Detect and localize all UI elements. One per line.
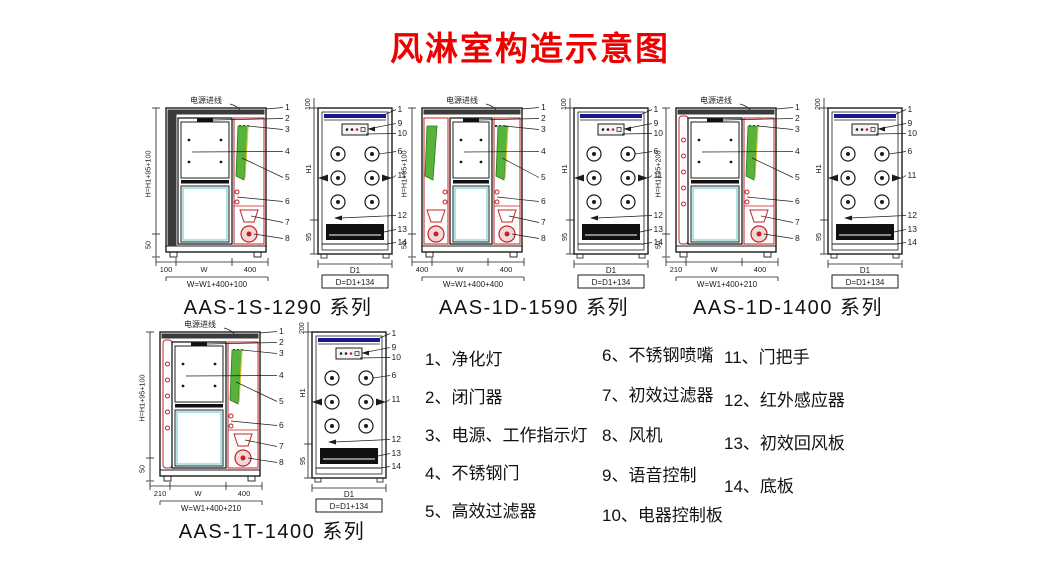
power-inlet-label: 电源进线 xyxy=(184,319,216,329)
depth-formula: D=D1+134 xyxy=(336,278,375,287)
callout-7: 7 xyxy=(285,217,290,227)
callout-8: 8 xyxy=(285,233,290,243)
base-height-dim: 50 xyxy=(400,241,409,249)
front-view-aas-1d-1400: 200H195D1D=D1+1341910611121314 xyxy=(814,94,920,290)
callout-2: 2 xyxy=(285,113,290,123)
h1-dim: H1 xyxy=(298,388,307,397)
callout-14: 14 xyxy=(908,237,918,247)
d1-dim: D1 xyxy=(344,490,355,499)
legend-item-14: 14、底板 xyxy=(724,465,845,508)
front-view-aas-1d-1590: 100H195D1D=D1+1341910611121314 xyxy=(560,94,666,290)
return-air-panel xyxy=(326,224,384,240)
bottom-dim-right: 400 xyxy=(238,489,251,498)
height-formula: H=H1+95+100 xyxy=(400,151,409,198)
views-aas-1t-1400: 电源进线H=H1+95+10050210W400W=W1+400+2101234… xyxy=(140,318,404,514)
depth-formula: D=D1+134 xyxy=(330,502,369,511)
callout-6: 6 xyxy=(392,370,397,380)
callout-4: 4 xyxy=(795,146,800,156)
base-height-dim: 50 xyxy=(654,241,663,249)
callout-8: 8 xyxy=(279,457,284,467)
dim-95: 95 xyxy=(304,233,313,241)
callout-6: 6 xyxy=(795,196,800,206)
callout-6: 6 xyxy=(908,146,913,156)
height-formula: H=H1+95+100 xyxy=(144,151,153,198)
diagram-group-aas-1d-1400: 电源进线H=H1+95+20050210W400W=W1+400+2101234… xyxy=(656,94,920,320)
width-formula: W=W1+400+400 xyxy=(443,280,504,289)
page: 风淋室构造示意图 电源进线H=H1+95+10050100W400W=W1+40… xyxy=(0,0,1060,569)
bottom-dim-right: 400 xyxy=(754,265,767,274)
bottom-dim-left: 100 xyxy=(160,265,173,274)
callout-7: 7 xyxy=(795,217,800,227)
diagram-group-aas-1t-1400: 电源进线H=H1+95+10050210W400W=W1+400+2101234… xyxy=(140,318,404,544)
width-formula: W=W1+400+210 xyxy=(181,504,242,513)
legend-item-1: 1、净化灯 xyxy=(425,341,587,379)
callout-2: 2 xyxy=(279,337,284,347)
callout-1: 1 xyxy=(285,102,290,112)
callout-4: 4 xyxy=(285,146,290,156)
views-aas-1d-1590: 电源进线H=H1+95+10050400W400W=W1+400+4001234… xyxy=(402,94,666,290)
callout-6: 6 xyxy=(279,420,284,430)
callout-5: 5 xyxy=(795,172,800,182)
power-inlet-label: 电源进线 xyxy=(190,95,222,105)
power-inlet-label: 电源进线 xyxy=(700,95,732,105)
callout-12: 12 xyxy=(908,210,918,220)
width-formula: W=W1+400+210 xyxy=(697,280,758,289)
depth-formula: D=D1+134 xyxy=(846,278,885,287)
d1-dim: D1 xyxy=(606,266,617,275)
callout-7: 7 xyxy=(279,441,284,451)
callout-9: 9 xyxy=(392,342,397,352)
lamp-strip xyxy=(580,114,642,118)
h1-dim: H1 xyxy=(304,164,313,173)
bottom-dim-left: 400 xyxy=(416,265,429,274)
dim-95: 95 xyxy=(814,233,823,241)
lamp-strip xyxy=(318,338,380,342)
height-formula: H=H1+95+200 xyxy=(654,151,663,198)
diagram-group-aas-1d-1590: 电源进线H=H1+95+10050400W400W=W1+400+4001234… xyxy=(402,94,666,320)
callout-5: 5 xyxy=(541,172,546,182)
callout-6: 6 xyxy=(541,196,546,206)
callout-13: 13 xyxy=(392,448,402,458)
callout-12: 12 xyxy=(392,434,402,444)
callout-11: 11 xyxy=(392,394,401,404)
callout-2: 2 xyxy=(795,113,800,123)
legend-item-13: 13、初效回风板 xyxy=(724,422,845,465)
dim-95: 95 xyxy=(560,233,569,241)
callout-13: 13 xyxy=(908,224,918,234)
h1-dim: H1 xyxy=(814,164,823,173)
front-view-aas-1t-1400: 200H195D1D=D1+1341910611121314 xyxy=(298,318,404,514)
front-view-aas-1s-1290: 100H195D1D=D1+1341910611121314 xyxy=(304,94,410,290)
legend-item-4: 4、不锈钢门 xyxy=(425,455,587,493)
legend-item-12: 12、红外感应器 xyxy=(724,379,845,422)
callout-3: 3 xyxy=(795,124,800,134)
legend-column-2: 6、不锈钢喷嘴7、初效过滤器8、风机9、语音控制10、电器控制板 xyxy=(602,336,723,536)
callout-3: 3 xyxy=(285,124,290,134)
base-height-dim: 50 xyxy=(144,241,153,249)
page-title: 风淋室构造示意图 xyxy=(0,22,1060,70)
callout-2: 2 xyxy=(541,113,546,123)
callout-8: 8 xyxy=(795,233,800,243)
series-label-aas-1d-1400: AAS-1D-1400 系列 xyxy=(656,291,920,320)
return-air-panel xyxy=(582,224,640,240)
lamp-strip xyxy=(834,114,896,118)
views-aas-1s-1290: 电源进线H=H1+95+10050100W400W=W1+400+1001234… xyxy=(146,94,410,290)
callout-4: 4 xyxy=(541,146,546,156)
bottom-dim-w: W xyxy=(710,265,718,274)
callout-3: 3 xyxy=(279,348,284,358)
series-label-aas-1t-1400: AAS-1T-1400 系列 xyxy=(140,515,404,544)
legend-item-11: 11、门把手 xyxy=(724,336,845,379)
callout-10: 10 xyxy=(908,128,918,138)
bottom-dim-w: W xyxy=(194,489,202,498)
legend-item-6: 6、不锈钢喷嘴 xyxy=(602,336,723,376)
callout-5: 5 xyxy=(279,396,284,406)
bottom-dim-w: W xyxy=(456,265,464,274)
dim-95: 95 xyxy=(298,457,307,465)
depth-formula: D=D1+134 xyxy=(592,278,631,287)
legend-item-8: 8、风机 xyxy=(602,416,723,456)
bottom-dim-right: 400 xyxy=(244,265,257,274)
height-formula: H=H1+95+100 xyxy=(138,375,147,422)
legend-item-5: 5、高效过滤器 xyxy=(425,493,587,531)
callout-1: 1 xyxy=(541,102,546,112)
callout-1: 1 xyxy=(392,328,397,338)
callout-7: 7 xyxy=(541,217,546,227)
side-section-view-aas-1d-1590: 电源进线H=H1+95+10050400W400W=W1+400+4001234… xyxy=(402,94,560,290)
d1-dim: D1 xyxy=(860,266,871,275)
callout-5: 5 xyxy=(285,172,290,182)
legend-item-10: 10、电器控制板 xyxy=(602,496,723,536)
lamp-strip xyxy=(324,114,386,118)
side-section-view-aas-1s-1290: 电源进线H=H1+95+10050100W400W=W1+400+1001234… xyxy=(146,94,304,290)
d1-dim: D1 xyxy=(350,266,361,275)
bottom-dim-right: 400 xyxy=(500,265,513,274)
bottom-dim-left: 210 xyxy=(670,265,683,274)
h1-dim: H1 xyxy=(560,164,569,173)
series-label-aas-1s-1290: AAS-1S-1290 系列 xyxy=(146,291,410,320)
legend-column-3: 11、门把手12、红外感应器13、初效回风板14、底板 xyxy=(724,336,845,508)
side-section-view-aas-1d-1400: 电源进线H=H1+95+20050210W400W=W1+400+2101234… xyxy=(656,94,814,290)
side-section-view-aas-1t-1400: 电源进线H=H1+95+10050210W400W=W1+400+2101234… xyxy=(140,318,298,514)
bottom-dim-left: 210 xyxy=(154,489,167,498)
callout-1: 1 xyxy=(279,326,284,336)
callout-1: 1 xyxy=(795,102,800,112)
callout-9: 9 xyxy=(908,118,913,128)
legend-item-3: 3、电源、工作指示灯 xyxy=(425,417,587,455)
views-aas-1d-1400: 电源进线H=H1+95+20050210W400W=W1+400+2101234… xyxy=(656,94,920,290)
base-height-dim: 50 xyxy=(138,465,147,473)
series-label-aas-1d-1590: AAS-1D-1590 系列 xyxy=(402,291,666,320)
diagram-group-aas-1s-1290: 电源进线H=H1+95+10050100W400W=W1+400+1001234… xyxy=(146,94,410,320)
callout-11: 11 xyxy=(908,170,917,180)
legend-item-2: 2、闭门器 xyxy=(425,379,587,417)
callout-6: 6 xyxy=(285,196,290,206)
return-air-panel xyxy=(320,448,378,464)
callout-10: 10 xyxy=(392,352,402,362)
bottom-dim-w: W xyxy=(200,265,208,274)
callout-4: 4 xyxy=(279,370,284,380)
width-formula: W=W1+400+100 xyxy=(187,280,248,289)
callout-14: 14 xyxy=(392,461,402,471)
callout-3: 3 xyxy=(541,124,546,134)
legend-item-9: 9、语音控制 xyxy=(602,456,723,496)
callout-8: 8 xyxy=(541,233,546,243)
power-inlet-label: 电源进线 xyxy=(446,95,478,105)
legend-item-7: 7、初效过滤器 xyxy=(602,376,723,416)
legend-column-1: 1、净化灯2、闭门器3、电源、工作指示灯4、不锈钢门5、高效过滤器 xyxy=(425,341,587,531)
return-air-panel xyxy=(836,224,894,240)
callout-1: 1 xyxy=(908,104,913,114)
